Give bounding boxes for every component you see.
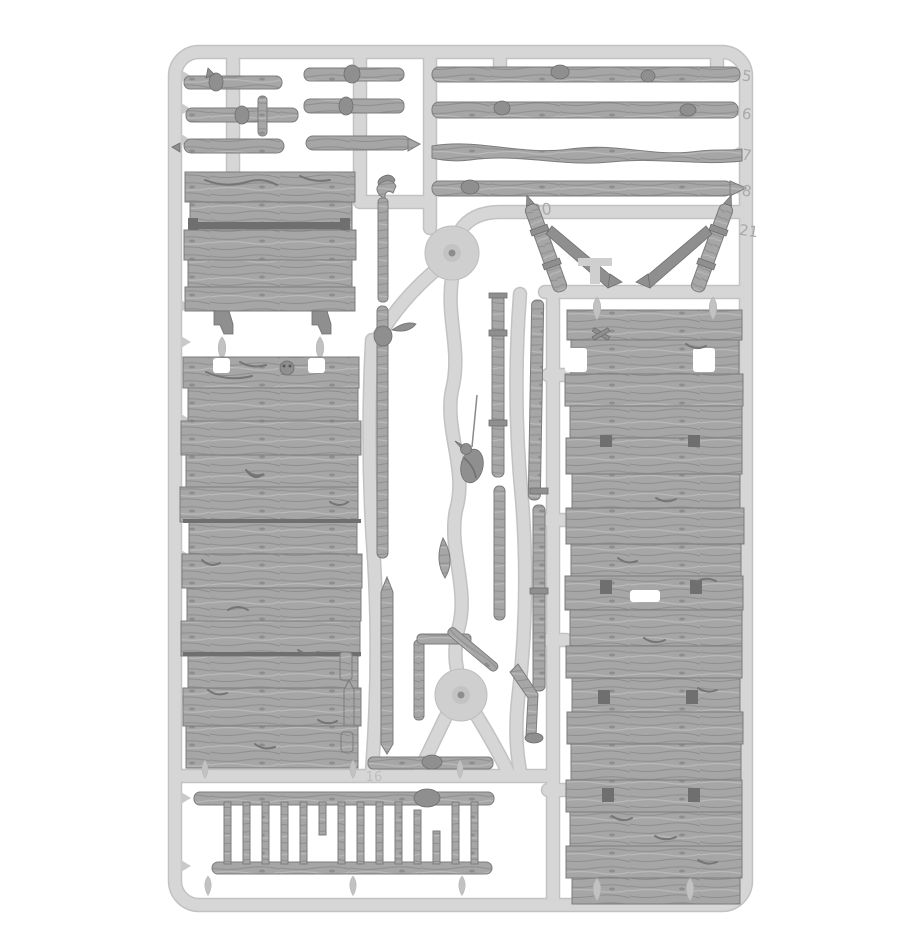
part-number-21: 21 bbox=[738, 221, 759, 241]
long-stick-6 bbox=[432, 101, 738, 118]
sprue-photo: 5 6 7 8 20 21 16 17 bbox=[0, 0, 920, 950]
injection-hub-top bbox=[425, 226, 479, 280]
pointed-pole bbox=[381, 577, 393, 754]
plank-wall-left bbox=[180, 357, 362, 768]
long-stick-8 bbox=[432, 180, 746, 196]
long-stick-5 bbox=[432, 65, 740, 82]
plank-wall-right bbox=[565, 297, 744, 904]
sprue-svg: 5 6 7 8 20 21 16 17 bbox=[0, 0, 920, 950]
part-number-16: 16 bbox=[366, 770, 383, 785]
injection-hub-bottom bbox=[435, 669, 487, 721]
